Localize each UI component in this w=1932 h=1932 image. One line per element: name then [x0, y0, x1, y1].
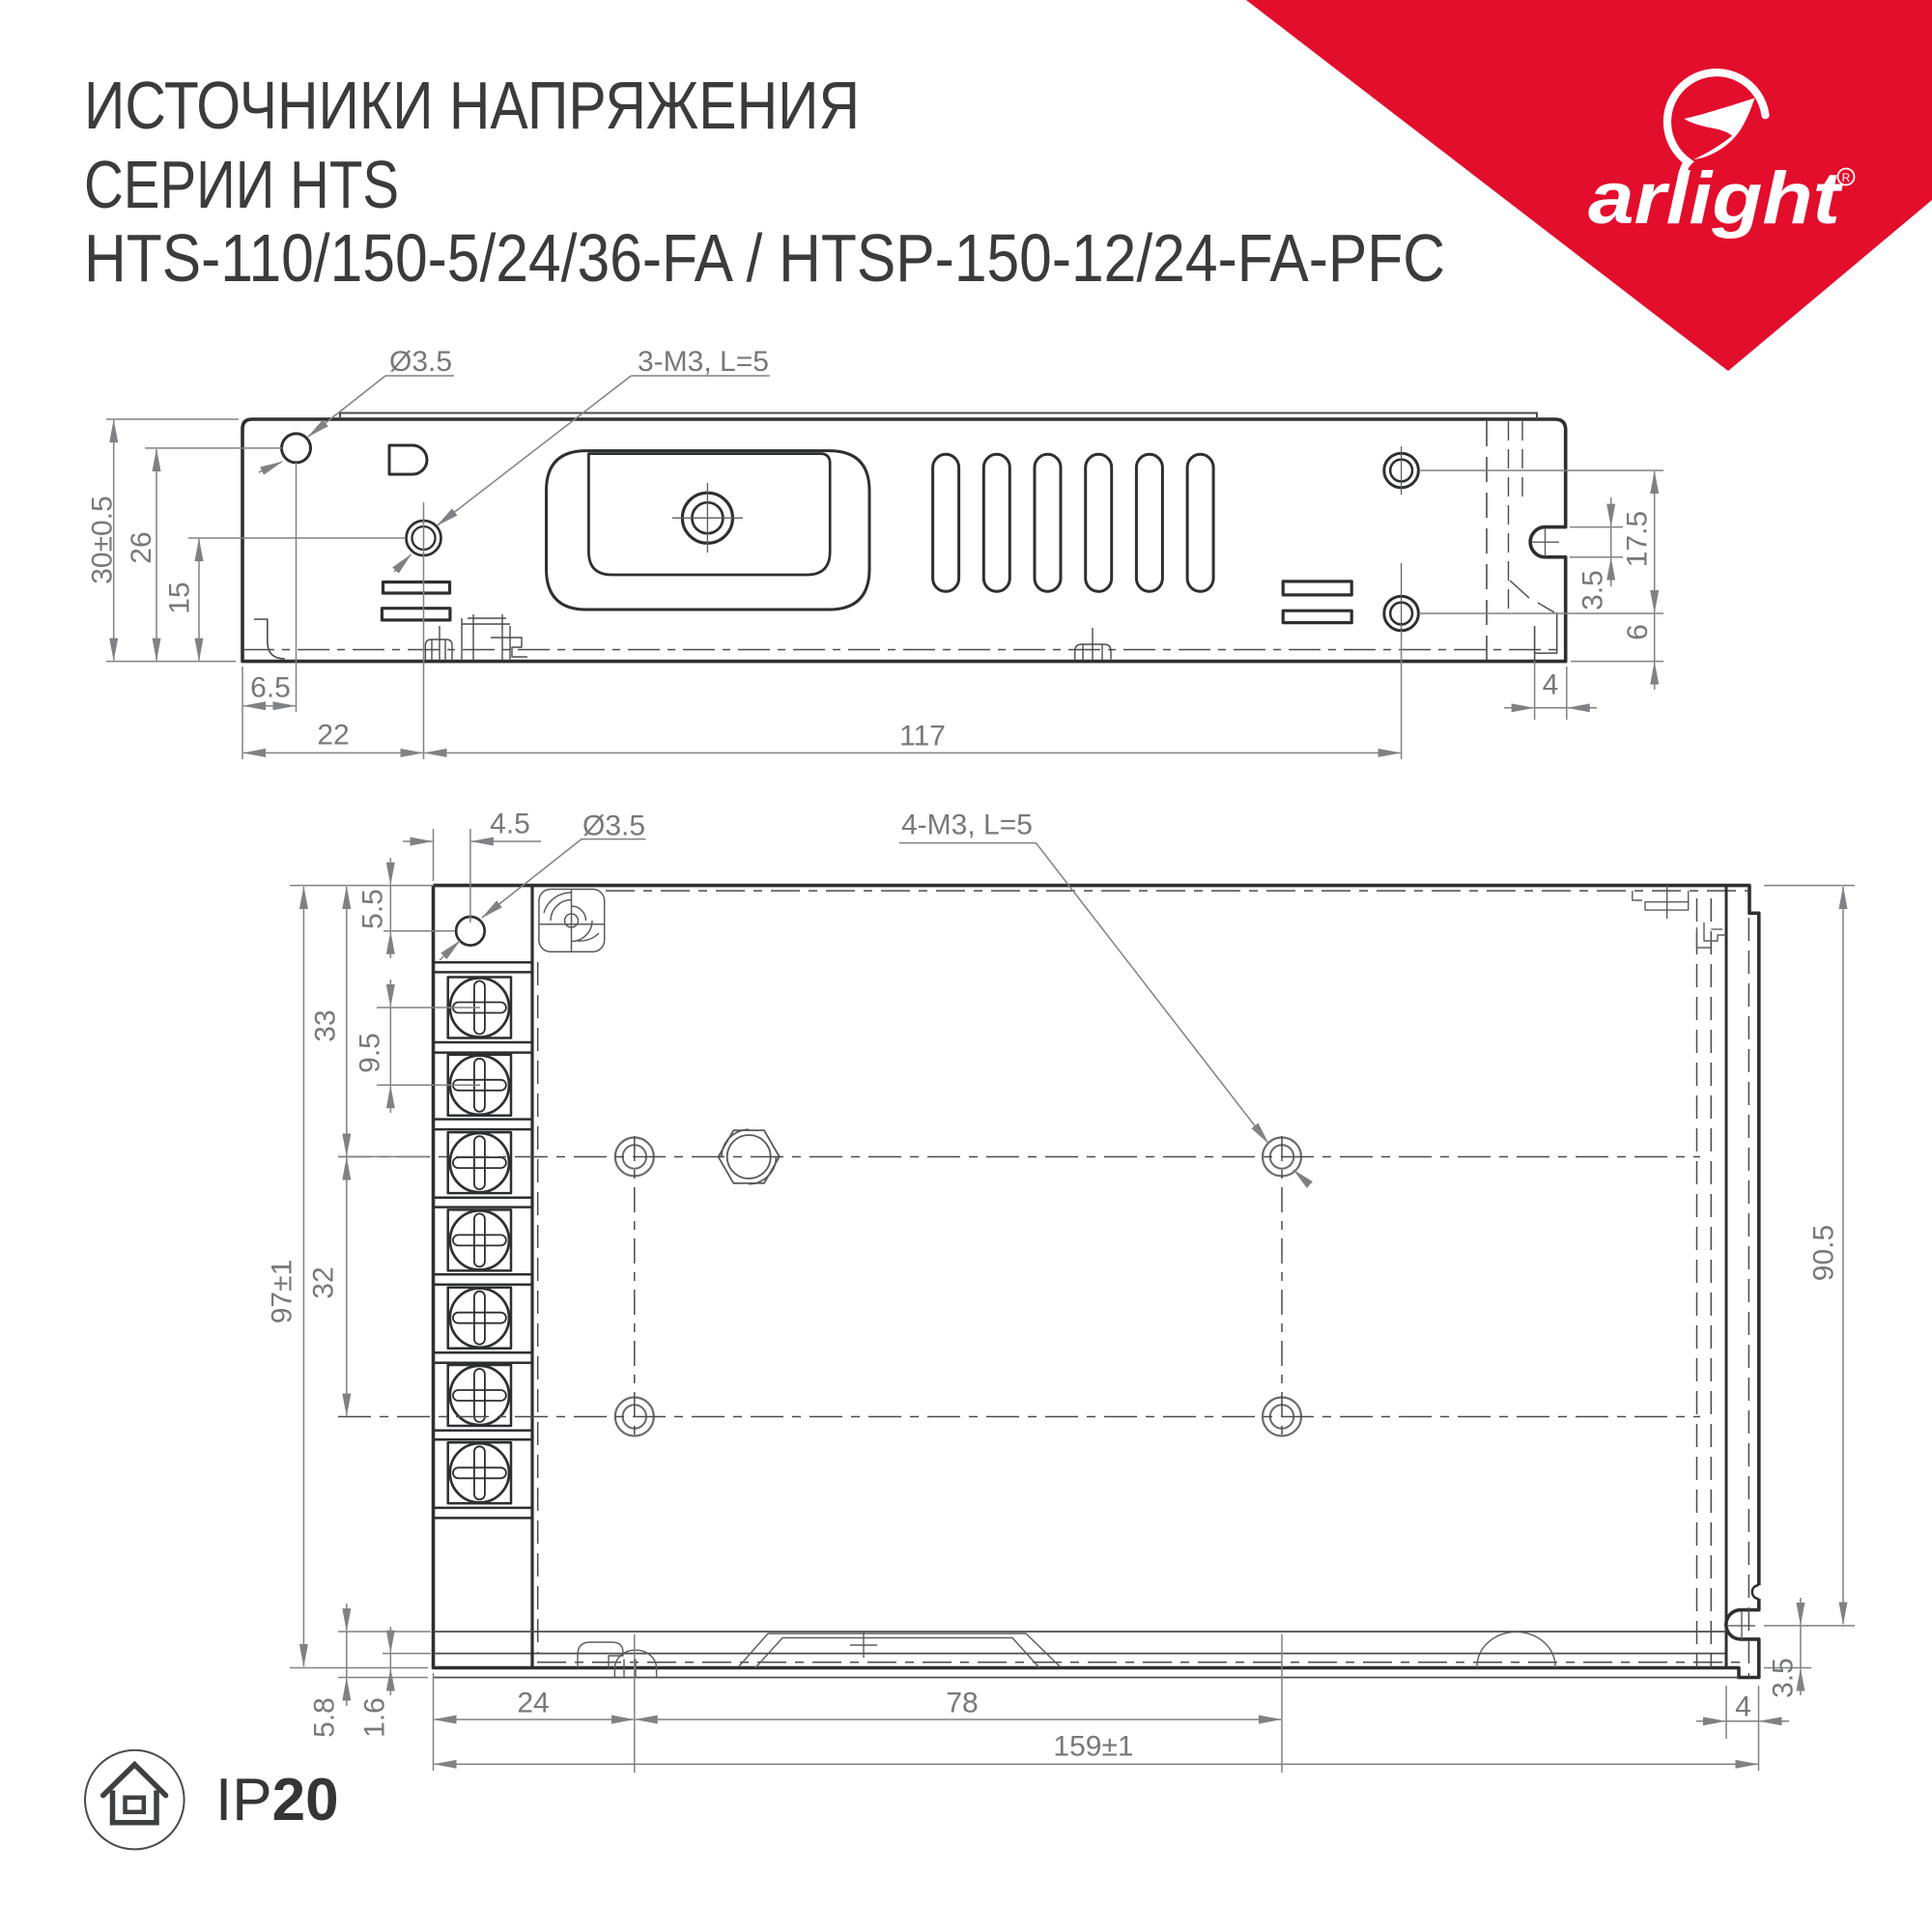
svg-text:15: 15 — [164, 582, 196, 613]
svg-text:3.5: 3.5 — [1768, 1658, 1800, 1698]
svg-text:1.6: 1.6 — [359, 1697, 391, 1738]
svg-text:9.5: 9.5 — [355, 1033, 386, 1073]
svg-text:159±1: 159±1 — [1053, 1731, 1133, 1763]
svg-text:5.5: 5.5 — [357, 889, 389, 929]
svg-text:ИСТОЧНИКИ НАПРЯЖЕНИЯ: ИСТОЧНИКИ НАПРЯЖЕНИЯ — [84, 68, 860, 143]
svg-text:5.8: 5.8 — [309, 1697, 341, 1738]
svg-text:Ø3.5: Ø3.5 — [389, 346, 452, 378]
svg-text:HTS-110/150-5/24/36-FA / HTSP-: HTS-110/150-5/24/36-FA / HTSP-150-12/24-… — [84, 220, 1445, 296]
svg-text:4: 4 — [1735, 1691, 1751, 1723]
svg-text:30±0.5: 30±0.5 — [87, 496, 119, 584]
svg-text:17.5: 17.5 — [1622, 511, 1654, 567]
svg-text:3.5: 3.5 — [1577, 570, 1609, 611]
svg-text:32: 32 — [308, 1266, 340, 1298]
svg-text:33: 33 — [310, 1009, 342, 1041]
svg-text:26: 26 — [126, 531, 157, 563]
svg-text:СЕРИИ HTS: СЕРИИ HTS — [84, 147, 399, 222]
svg-text:97±1: 97±1 — [267, 1260, 298, 1324]
svg-text:117: 117 — [899, 721, 946, 753]
svg-text:arlight: arlight — [1588, 157, 1843, 240]
svg-text:IP20: IP20 — [215, 1767, 339, 1833]
svg-text:R: R — [1842, 171, 1851, 185]
svg-text:6.5: 6.5 — [250, 672, 291, 704]
svg-text:4-M3, L=5: 4-M3, L=5 — [901, 810, 1033, 841]
svg-text:Ø3.5: Ø3.5 — [582, 810, 645, 842]
svg-text:6: 6 — [1622, 624, 1654, 640]
svg-text:4.5: 4.5 — [490, 809, 530, 840]
svg-text:22: 22 — [317, 720, 349, 752]
svg-text:3-M3, L=5: 3-M3, L=5 — [638, 346, 769, 378]
svg-text:24: 24 — [517, 1688, 549, 1719]
svg-text:78: 78 — [946, 1688, 978, 1719]
svg-text:4: 4 — [1543, 669, 1559, 701]
svg-text:90.5: 90.5 — [1808, 1225, 1840, 1281]
